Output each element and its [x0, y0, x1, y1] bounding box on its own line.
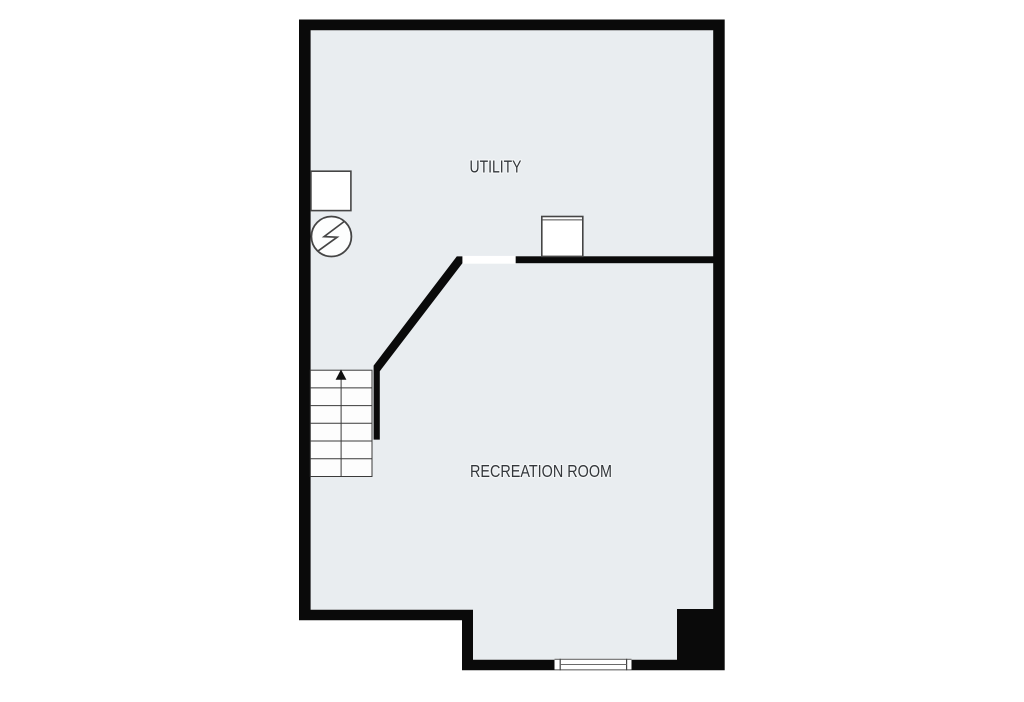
- svg-text:UTILITY: UTILITY: [470, 157, 522, 177]
- svg-text:RECREATION ROOM: RECREATION ROOM: [470, 461, 612, 481]
